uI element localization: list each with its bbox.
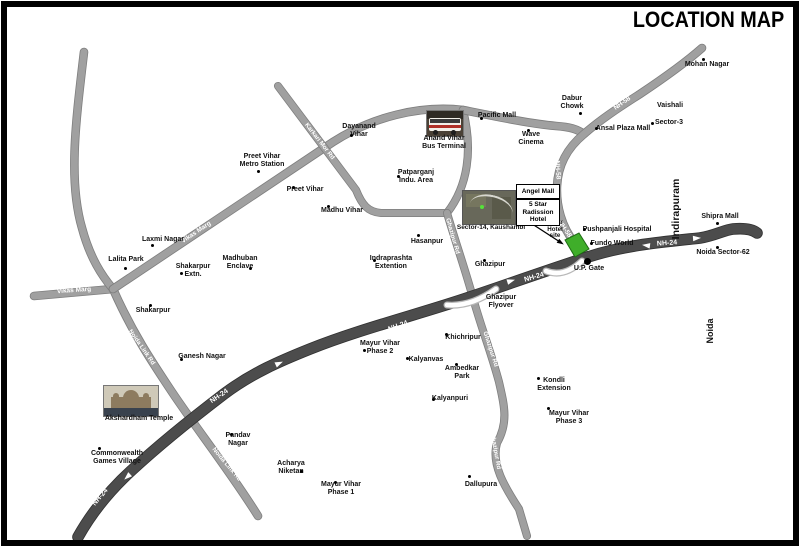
- place-label-line: Patparganj: [398, 169, 434, 177]
- place-dabur-chowk: DaburChowk: [561, 95, 584, 111]
- place-wave-cinema: WaveCinema: [518, 131, 543, 147]
- place-sector-14-kaushambi: Sector-14, Kaushambi: [457, 224, 525, 231]
- place-label-line: site: [547, 233, 562, 240]
- place-anand-vihar-bus-terminal: Anand ViharBus Terminal: [422, 135, 466, 151]
- place-hasanpur: Hasanpur: [411, 238, 443, 246]
- place-label-line: Cinema: [518, 139, 543, 147]
- place-label-line: Indu. Area: [398, 177, 434, 185]
- place-ambedkar-park: AmbedkarPark: [445, 365, 479, 381]
- place-dot-commonwealth-games-village: [98, 447, 101, 450]
- place-lalita-park: Lalita Park: [108, 256, 143, 264]
- place-label-line: Hasanpur: [411, 238, 443, 246]
- place-label-line: Mohan Nagar: [685, 61, 729, 69]
- place-label-line: Phase 2: [360, 348, 400, 356]
- place-dot-acharya-niketan: [300, 470, 303, 473]
- place-mohan-nagar: Mohan Nagar: [685, 61, 729, 69]
- place-label-line: Dayanand: [342, 123, 375, 131]
- place-label-line: Acharya: [277, 460, 305, 468]
- place-label-line: Lalita Park: [108, 256, 143, 264]
- place-pacific-mall: Pacific Mall: [478, 112, 516, 120]
- temple-tower: [113, 393, 119, 401]
- place-label-line: Vaishali: [657, 102, 683, 110]
- place-dot-ambedkar-park: [455, 363, 458, 366]
- place-dot-preet-vihar-metro-station: [257, 170, 260, 173]
- place-noida-sector-62: Noida Sector-62: [696, 249, 749, 257]
- place-label-line: Nagar: [226, 440, 251, 448]
- place-dot-indraprashta-extention: [373, 259, 376, 262]
- callout-line: Angel Mall: [522, 188, 555, 195]
- area-label-indirapuram: Indirapuram: [670, 179, 682, 240]
- place-dot-shipra-mall: [716, 222, 719, 225]
- page-title: LOCATION MAP: [633, 7, 784, 33]
- road-left-road: [74, 52, 113, 289]
- place-dot-sector-3: [651, 122, 654, 125]
- place-sector-3: Sector-3: [655, 119, 683, 127]
- place-label-line: Madhu Vihar: [321, 207, 363, 215]
- place-label-line: Anand Vihar: [422, 135, 466, 143]
- place-label-line: Phase 1: [321, 489, 361, 497]
- place-label-line: Extension: [537, 385, 570, 393]
- place-dot-khichripur: [445, 333, 448, 336]
- place-label-line: Kalyanvas: [409, 356, 444, 364]
- callout-line: Radission: [522, 209, 553, 216]
- place-label-line: Flyover: [486, 302, 516, 310]
- place-akshardham-temple: Akshardham Temple: [105, 415, 173, 423]
- location-map: NH-24NH-24NH-24NH-24NH-24NH-58NH-58NH-58…: [0, 0, 800, 547]
- place-laxmi-nagar: Laxmi Nagar: [142, 236, 184, 244]
- place-label-line: Ansal Plaza Mall: [596, 125, 650, 133]
- place-dot-kalyanpuri: [432, 398, 435, 401]
- place-ghazipur: Ghazipur: [475, 261, 505, 269]
- road-label-noida-link-2: Noida Link Rd: [211, 446, 243, 483]
- callout-line: 5 Star: [529, 201, 547, 208]
- place-label-line: Preet Vihar: [240, 153, 285, 161]
- place-mayur-vihar-phase-3: Mayur ViharPhase 3: [549, 410, 589, 426]
- place-label-line: Pushpanjali Hospital: [583, 226, 652, 234]
- place-dot-mayur-vihar-phase-1: [334, 481, 337, 484]
- road-label-nh24-5: NH-24: [657, 239, 678, 247]
- place-dot-shakarpur-extn: [180, 272, 183, 275]
- place-label-line: Sector-3: [655, 119, 683, 127]
- place-dot-dayanand-vihar: [350, 134, 353, 137]
- place-label-line: Mayur Vihar: [321, 481, 361, 489]
- bus-stripe: [429, 125, 461, 128]
- place-dot-dabur-chowk: [579, 112, 582, 115]
- place-dot-pacific-mall: [480, 117, 483, 120]
- place-up-gate: U.P. Gate: [574, 265, 604, 273]
- place-label-line: Dallupura: [465, 481, 497, 489]
- place-dot-kondli-extension: [537, 377, 540, 380]
- place-dot-shakarpur: [149, 304, 152, 307]
- road-label-vikas-marg-2: Vikas Marg: [180, 220, 212, 245]
- place-indraprashta-extention: IndraprashtaExtention: [370, 255, 412, 271]
- place-commonwealth-games-village: CommonwealthGames Village: [91, 450, 143, 466]
- place-label-line: Wave: [518, 131, 543, 139]
- place-label-line: Ambedkar: [445, 365, 479, 373]
- place-dot-mohan-nagar: [702, 58, 705, 61]
- place-dot-ansal-plaza-mall: [595, 127, 598, 130]
- place-label-line: Ghazipur: [475, 261, 505, 269]
- place-label-line: Ghazipur: [486, 294, 516, 302]
- place-label-line: Phase 3: [549, 418, 589, 426]
- place-vaishali: Vaishali: [657, 102, 683, 110]
- place-label-line: Madhuban: [223, 255, 258, 263]
- place-mayur-vihar-phase-2: Mayur ViharPhase 2: [360, 340, 400, 356]
- sector-14-photo: [462, 190, 516, 225]
- place-dot-preet-vihar: [292, 186, 295, 189]
- place-label-line: Noida Sector-62: [696, 249, 749, 257]
- place-dot-patparganj-indu-area: [397, 175, 400, 178]
- place-label-line: Extention: [370, 263, 412, 271]
- place-label-line: U.P. Gate: [574, 265, 604, 273]
- satellite-site-marker: [480, 205, 484, 209]
- place-label-line: Metro Station: [240, 161, 285, 169]
- place-label-line: Bus Terminal: [422, 143, 466, 151]
- place-label-line: Pacific Mall: [478, 112, 516, 120]
- place-khichripur: Khichripur: [445, 334, 480, 342]
- place-dot-mayur-vihar-phase-2: [363, 349, 366, 352]
- place-label-line: Khichripur: [445, 334, 480, 342]
- place-dot-lalita-park: [124, 267, 127, 270]
- place-dot-fundo-world: [590, 242, 593, 245]
- place-dallupura: Dallupura: [465, 481, 497, 489]
- place-label-line: Fundo World: [590, 240, 633, 248]
- place-label-line: Mayur Vihar: [549, 410, 589, 418]
- place-dot-ganesh-nagar: [180, 358, 183, 361]
- place-kondli-extension: KondliExtension: [537, 377, 570, 393]
- place-label-line: Akshardham Temple: [105, 415, 173, 423]
- place-label-line: Vihar: [342, 131, 375, 139]
- place-label-line: Dabur: [561, 95, 584, 103]
- callout-radission-hotel: 5 StarRadissionHotel: [516, 199, 560, 226]
- place-madhuban-enclave: MadhubanEnclave: [223, 255, 258, 271]
- place-ghazipur-flyover: GhazipurFlyover: [486, 294, 516, 310]
- place-label-line: Mayur Vihar: [360, 340, 400, 348]
- temple-tower: [143, 393, 149, 401]
- place-dot-ghazipur: [483, 259, 486, 262]
- place-label-line: Shakarpur: [176, 263, 211, 271]
- up-gate-junction-dot: [584, 258, 591, 265]
- place-dot-pandav-nagar: [230, 433, 233, 436]
- place-shipra-mall: Shipra Mall: [701, 213, 738, 221]
- place-label-line: Enclave: [223, 263, 258, 271]
- place-label-line: Kondli: [537, 377, 570, 385]
- place-pushpanjali-hospital: Pushpanjali Hospital: [583, 226, 652, 234]
- road-label-nh58-2: NH-58: [553, 160, 561, 180]
- place-shakarpur: Shakarpur: [136, 307, 171, 315]
- place-label-line: Ganesh Nagar: [178, 353, 225, 361]
- callout-line: Hotel: [530, 216, 546, 223]
- place-mayur-vihar-phase-1: Mayur ViharPhase 1: [321, 481, 361, 497]
- place-label-line: Chowk: [561, 103, 584, 111]
- place-label-line: Shakarpur: [136, 307, 171, 315]
- place-label-line: Laxmi Nagar: [142, 236, 184, 244]
- place-dot-pushpanjali-hospital: [583, 228, 586, 231]
- place-label-line: Kalyanpuri: [432, 395, 468, 403]
- place-label-line: Games Village: [91, 458, 143, 466]
- place-kalyanpuri: Kalyanpuri: [432, 395, 468, 403]
- bus-windows: [430, 119, 460, 123]
- place-ansal-plaza-mall: Ansal Plaza Mall: [596, 125, 650, 133]
- place-dot-hasanpur: [417, 234, 420, 237]
- place-label-line: Commonwealth: [91, 450, 143, 458]
- place-preet-vihar-metro-station: Preet ViharMetro Station: [240, 153, 285, 169]
- anand-vihar-bus-photo: [426, 110, 464, 137]
- road-label-ghazipur-rd-1: Ghazipur Rd: [444, 217, 461, 254]
- place-label-line: Shipra Mall: [701, 213, 738, 221]
- place-acharya-niketan: AcharyaNiketan: [277, 460, 305, 476]
- place-label-line: Park: [445, 373, 479, 381]
- temple-dome: [123, 390, 139, 400]
- road-label-noida-link-1: Noida Link Rd: [127, 328, 157, 366]
- akshardham-photo: [103, 385, 159, 417]
- place-dayanand-vihar: DayanandVihar: [342, 123, 375, 139]
- place-dot-wave-cinema: [527, 129, 530, 132]
- callout-angel-mall: Angel Mall: [516, 184, 560, 199]
- place-dot-mayur-vihar-phase-3: [547, 407, 550, 410]
- place-fundo-world: Fundo World: [590, 240, 633, 248]
- place-kalyanvas: Kalyanvas: [409, 356, 444, 364]
- place-dot-madhuban-enclave: [249, 267, 252, 270]
- place-dot-dallupura: [468, 475, 471, 478]
- place-dot-kalyanvas: [406, 357, 409, 360]
- place-dot-laxmi-nagar: [151, 244, 154, 247]
- area-label-noida: Noida: [705, 318, 715, 343]
- place-dot-madhu-vihar: [327, 205, 330, 208]
- place-ganesh-nagar: Ganesh Nagar: [178, 353, 225, 361]
- place-patparganj-indu-area: PatparganjIndu. Area: [398, 169, 434, 185]
- place-madhu-vihar: Madhu Vihar: [321, 207, 363, 215]
- place-dot-noida-sector-62: [716, 246, 719, 249]
- place-label-line: Indraprashta: [370, 255, 412, 263]
- place-label-line: Sector-14, Kaushambi: [457, 224, 525, 231]
